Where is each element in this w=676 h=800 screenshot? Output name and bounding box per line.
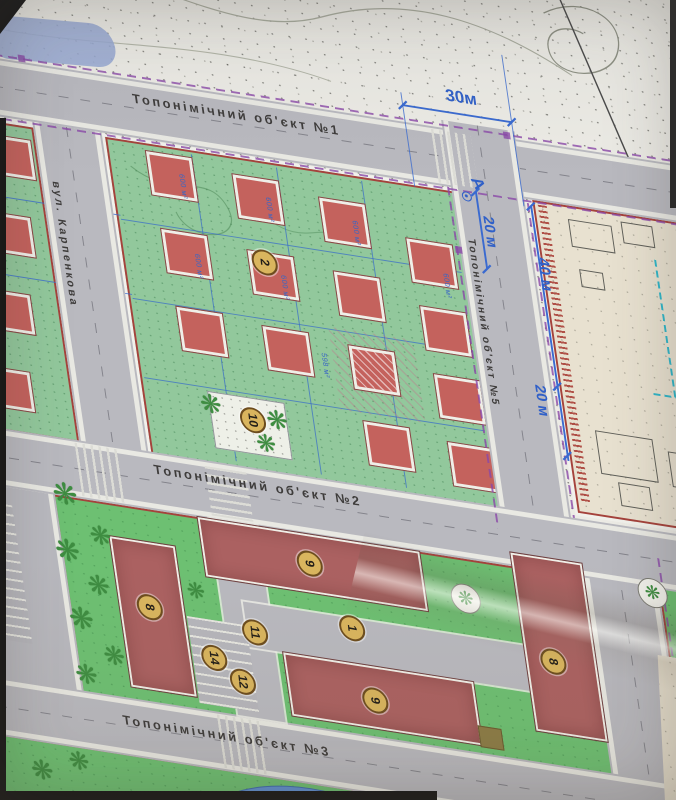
- scan-edge-right: [670, 0, 676, 208]
- scan-edge-left: [0, 118, 6, 796]
- base-map: Топонімічний об'єкт №1 Топонімічний об'є…: [0, 0, 676, 800]
- map-photo: Топонімічний об'єкт №1 Топонімічний об'є…: [0, 0, 676, 800]
- tree-icon: [53, 535, 82, 569]
- planned-house-hatched: [348, 345, 400, 396]
- dimension-30m: 30м: [428, 83, 494, 113]
- existing-building-outline: [668, 451, 676, 494]
- utility-structure: [478, 725, 505, 751]
- utility-cyan-line: [653, 393, 676, 398]
- tree-icon: [255, 431, 278, 458]
- existing-building-outline: [579, 269, 605, 291]
- planned-house: [262, 326, 314, 377]
- planned-house: [420, 306, 472, 357]
- existing-building-outline: [618, 482, 653, 511]
- tree-icon: [198, 389, 223, 418]
- utility-marker: [18, 55, 26, 63]
- planned-house: [161, 229, 213, 280]
- tree-icon: [185, 579, 206, 604]
- tree-icon: [51, 479, 80, 513]
- utility-marker: [455, 246, 463, 254]
- planned-house: [334, 271, 386, 322]
- tree-icon: [67, 603, 96, 637]
- planned-house: [319, 197, 371, 248]
- scan-edge-bottom: [0, 791, 437, 800]
- existing-building-outline: [620, 221, 655, 248]
- tree-icon: [73, 660, 99, 690]
- tree-icon: [88, 521, 113, 550]
- planned-house: [146, 151, 198, 202]
- planned-house: [363, 421, 415, 472]
- utility-marker: [503, 131, 511, 139]
- crosswalk: [74, 443, 127, 504]
- tree-icon: [29, 756, 55, 786]
- tree-icon: [86, 571, 112, 601]
- tree-icon: [67, 748, 91, 776]
- existing-building-outline: [568, 219, 616, 254]
- planned-house: [176, 307, 228, 358]
- existing-building-outline: [595, 430, 659, 483]
- utility-cyan-line: [654, 260, 676, 399]
- planned-house: [232, 174, 284, 225]
- tree-icon: [102, 641, 127, 670]
